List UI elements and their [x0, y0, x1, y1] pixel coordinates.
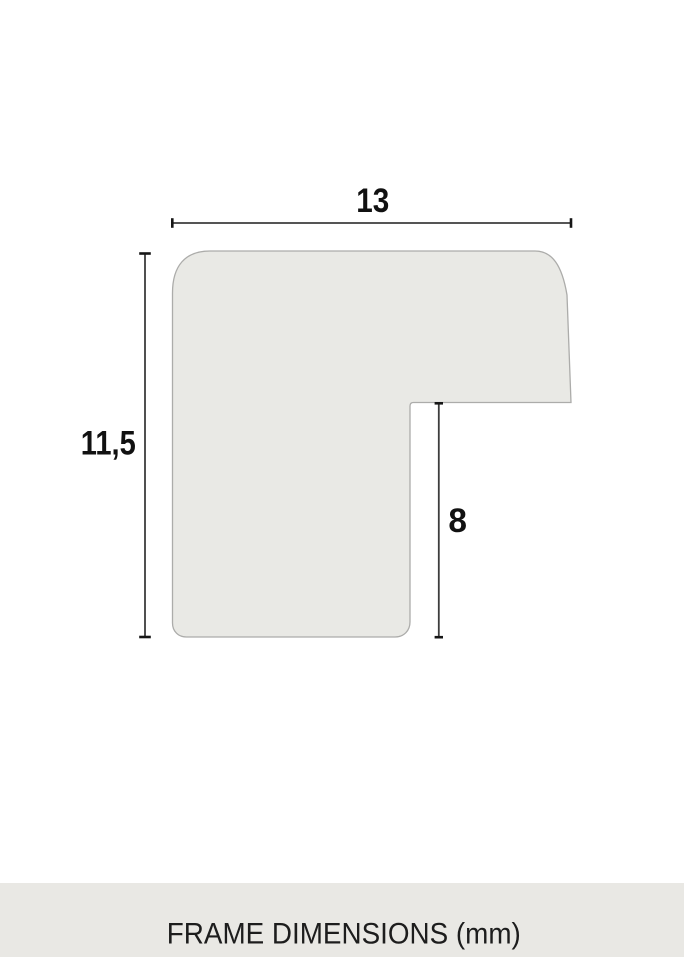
- svg-text:8: 8: [448, 502, 467, 540]
- svg-text:13: 13: [356, 182, 389, 220]
- svg-text:FRAME DIMENSIONS (mm): FRAME DIMENSIONS (mm): [167, 918, 521, 951]
- svg-text:11,5: 11,5: [81, 425, 136, 463]
